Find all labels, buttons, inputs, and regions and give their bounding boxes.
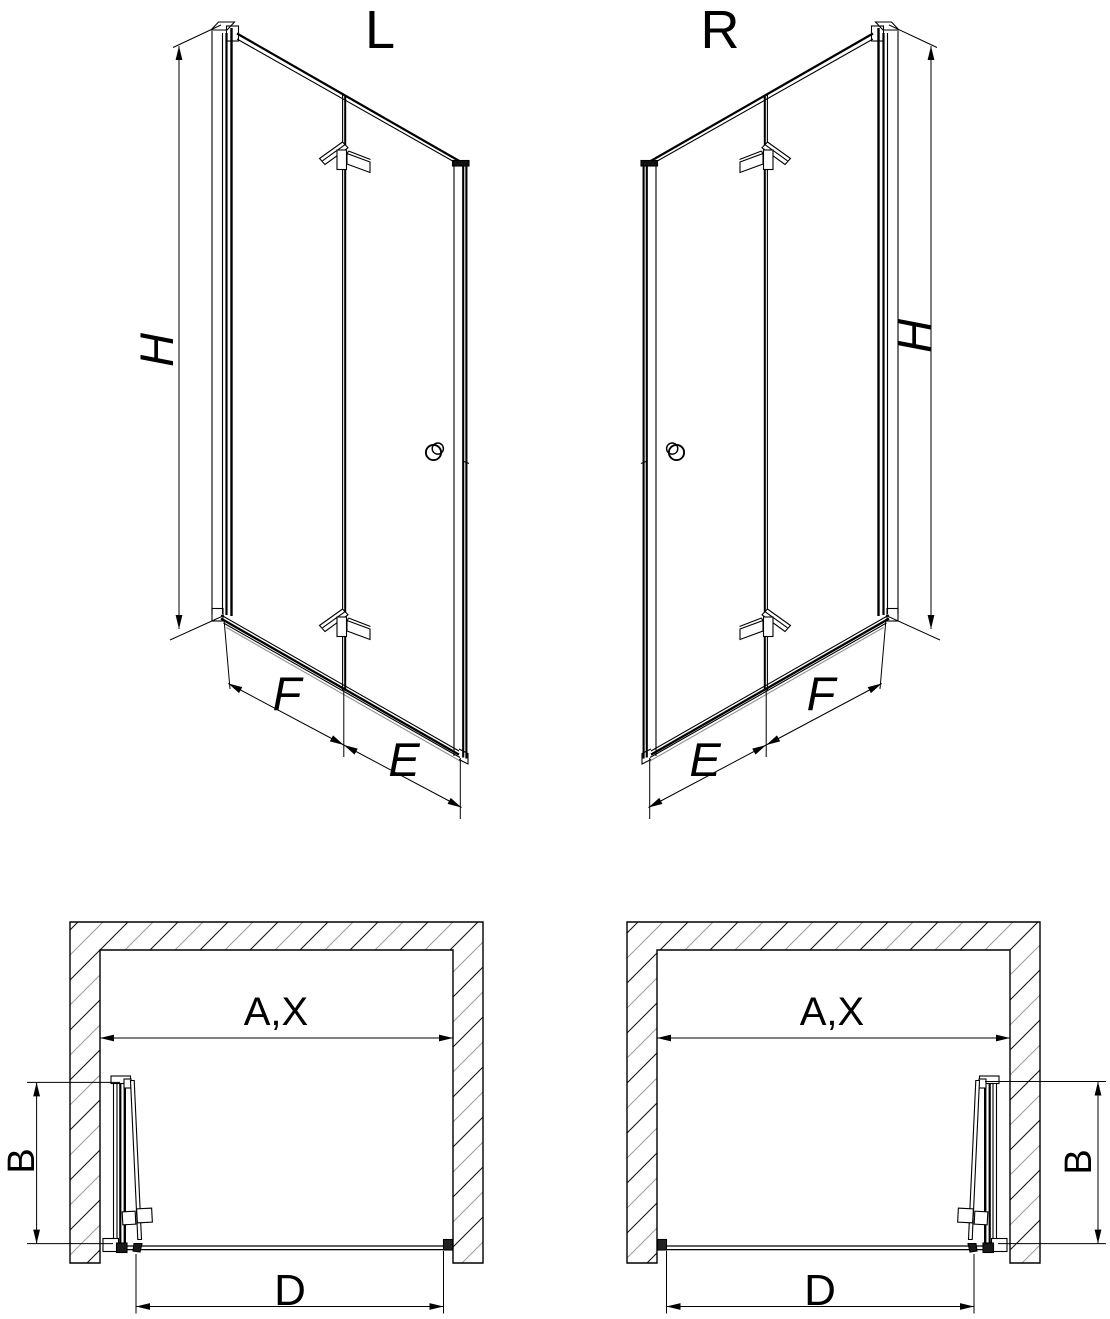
depth-label-left: B <box>1 1148 43 1173</box>
height-label-left: H <box>130 333 183 367</box>
height-label-right: H <box>888 319 941 353</box>
fold-panel-label-right: F <box>807 667 838 720</box>
entry-label-right: D <box>804 1266 836 1315</box>
opening-label-right: A,X <box>800 990 864 1034</box>
bifold-shower-door-diagram: L R H H F E F E A,X A,X D D B B <box>0 0 1110 1319</box>
variant-label-left: L <box>365 0 395 60</box>
return-panel-label-left: E <box>388 733 420 786</box>
plan-right-variant <box>627 922 1040 1314</box>
elevation-right-variant <box>641 22 940 819</box>
elevation-left-variant <box>170 22 469 819</box>
depth-label-right: B <box>1058 1149 1100 1174</box>
opening-label-left: A,X <box>244 990 308 1034</box>
technical-drawing-page: L R H H F E F E A,X A,X D D B B <box>0 0 1110 1319</box>
return-panel-label-right: E <box>689 733 721 786</box>
variant-label-right: R <box>701 0 740 60</box>
fold-panel-label-left: F <box>273 667 304 720</box>
entry-label-left: D <box>274 1266 306 1315</box>
plan-left-variant <box>70 922 483 1314</box>
